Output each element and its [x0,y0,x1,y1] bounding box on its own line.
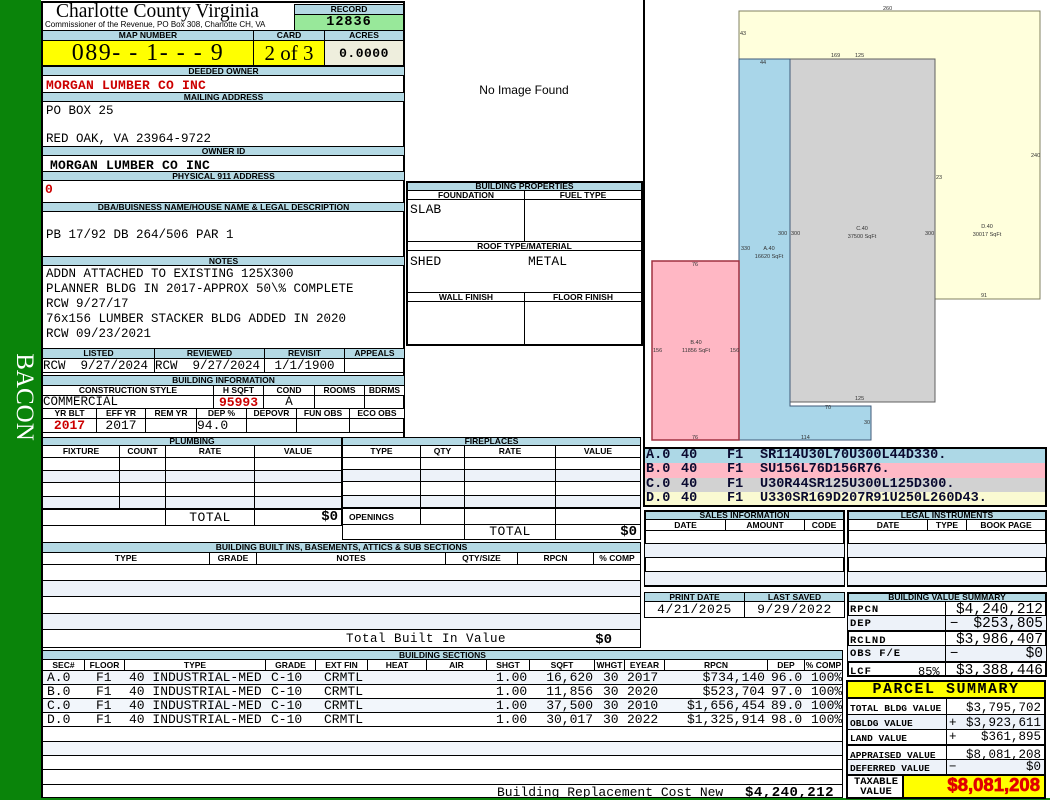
svg-text:260: 260 [883,6,892,12]
svg-text:330: 330 [741,246,750,252]
svg-text:76: 76 [692,262,698,268]
svg-text:30: 30 [864,420,870,426]
svg-text:43: 43 [740,31,746,37]
svg-text:C.40: C.40 [856,226,868,232]
svg-text:156: 156 [653,348,662,354]
svg-text:16620 SqFt: 16620 SqFt [755,254,784,260]
svg-text:11856 SqFt: 11856 SqFt [682,348,711,354]
svg-text:D.40: D.40 [981,224,993,230]
svg-text:300: 300 [778,231,787,237]
svg-text:125: 125 [855,396,864,402]
svg-text:169: 169 [831,53,840,59]
svg-text:A.40: A.40 [763,246,774,252]
svg-text:37500 SqFt: 37500 SqFt [848,234,877,240]
svg-text:B.40: B.40 [690,340,701,346]
svg-text:300: 300 [925,231,934,237]
svg-text:156: 156 [730,348,739,354]
svg-text:240: 240 [1031,153,1040,159]
svg-text:114: 114 [801,435,810,441]
svg-text:44: 44 [760,60,766,66]
svg-text:125: 125 [855,53,864,59]
svg-text:70: 70 [825,405,831,411]
svg-text:76: 76 [692,435,698,441]
svg-text:300: 300 [791,231,800,237]
svg-text:23: 23 [936,175,942,181]
svg-text:30017 SqFt: 30017 SqFt [973,232,1002,238]
svg-text:91: 91 [981,293,987,299]
